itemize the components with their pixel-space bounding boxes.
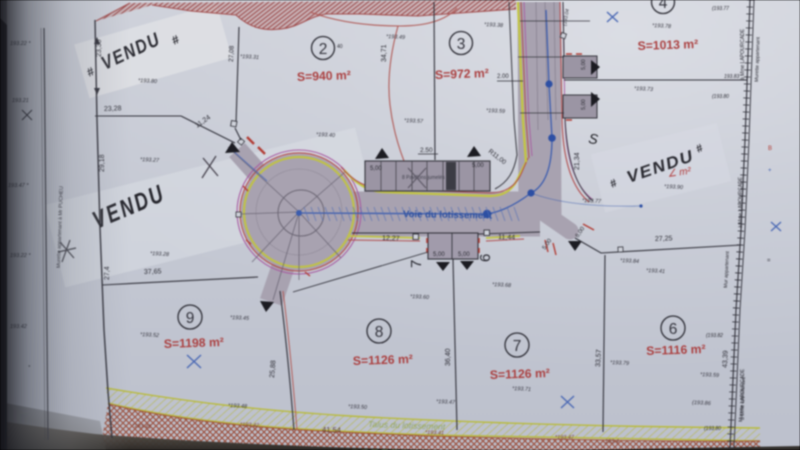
svg-text:*193.27: *193.27 [140,157,160,164]
svg-text:11,44: 11,44 [498,234,515,242]
svg-text:*193.73: *193.73 [634,86,654,93]
svg-text:à Mme LAPOURCADE: à Mme LAPOURCADE [738,176,744,228]
svg-text:7: 7 [513,338,522,355]
svg-text:193.4: 193.4 [605,439,619,445]
svg-text:2.50: 2.50 [420,147,433,154]
svg-text:*193.45: *193.45 [230,315,250,322]
svg-text:2.00: 2.00 [497,74,509,80]
svg-text:41,54: 41,54 [322,425,341,435]
svg-text:*193.84: *193.84 [620,258,639,265]
svg-text:S=1126 m²: S=1126 m² [353,352,413,368]
svg-text:7: 7 [408,260,425,268]
svg-text:*193.42: *193.42 [240,422,259,429]
svg-text:*193.47: *193.47 [555,435,575,441]
svg-text:*193.57: *193.57 [404,118,424,125]
svg-text:S=1116 m²: S=1116 m² [646,342,706,358]
svg-text:S=972 m²: S=972 m² [435,66,489,82]
svg-text:6: 6 [477,254,494,262]
svg-text:*193.52: *193.52 [140,332,159,339]
svg-text:*193.40: *193.40 [316,132,336,139]
svg-text:*193.59: *193.59 [700,372,719,379]
svg-text:5,00: 5,00 [370,166,382,172]
svg-text:193.83: 193.83 [724,74,740,80]
svg-text:*193.79: *193.79 [610,360,629,367]
svg-text:(193.86: (193.86 [692,400,712,407]
svg-text:B: B [768,146,772,152]
svg-text:=: = [767,258,771,264]
svg-text:(193.80: (193.80 [704,426,721,432]
svg-text:27,25: 27,25 [655,235,673,243]
svg-text:*193.68: *193.68 [492,282,512,289]
svg-text:27,08: 27,08 [228,45,236,62]
svg-text:(193.80: (193.80 [712,94,729,100]
svg-text:*193.41: *193.41 [646,268,665,275]
svg-text:S=1013 m²: S=1013 m² [637,37,698,53]
svg-text:*193.41: *193.41 [425,430,444,437]
svg-text:8: 8 [375,324,384,341]
svg-text:8 Pavillons jumelés: 8 Pavillons jumelés [402,175,445,181]
svg-text:36,40: 36,40 [445,348,452,366]
svg-text:43,39: 43,39 [722,350,730,368]
svg-text:5,00: 5,00 [433,252,445,258]
svg-text:*193.60: *193.60 [410,294,430,301]
svg-text:9: 9 [186,310,195,327]
svg-text:Voie du lotissement: Voie du lotissement [403,209,493,222]
svg-text:4: 4 [659,0,668,12]
svg-text:*193.38: *193.38 [484,22,504,29]
svg-text:5,00: 5,00 [581,99,587,110]
svg-text:5,00: 5,00 [458,252,470,258]
svg-text:3: 3 [457,36,466,53]
svg-text:6: 6 [669,321,678,338]
svg-text:2: 2 [319,41,328,58]
svg-text:*193.59: *193.59 [486,108,505,115]
svg-text:*193.47: *193.47 [436,399,456,406]
svg-text:40: 40 [337,44,343,50]
svg-text:*193.77: *193.77 [582,198,602,205]
svg-text:*193.28: *193.28 [150,251,170,258]
svg-text:S=1126 m²: S=1126 m² [490,366,550,382]
svg-text:*193.50: *193.50 [348,404,368,411]
svg-text:S=940 m²: S=940 m² [297,68,351,84]
svg-text:*193.80: *193.80 [138,78,158,85]
svg-text:*193.49: *193.49 [386,34,405,41]
svg-text:(193.77: (193.77 [712,6,729,12]
svg-text:*193.90: *193.90 [664,184,684,191]
svg-text:+: + [768,168,772,174]
svg-text:21,34: 21,34 [574,152,581,170]
svg-text:5,00: 5,00 [581,59,587,70]
svg-text:12,27: 12,27 [382,235,400,243]
svg-text:*193.48: *193.48 [228,403,248,410]
svg-text:*193.78: *193.78 [652,23,672,30]
svg-text:à Mme LAPOURCADE: à Mme LAPOURCADE [740,368,746,420]
svg-text:*193.71: *193.71 [512,386,531,393]
svg-text:34,71: 34,71 [381,44,388,62]
svg-text:(193.82: (193.82 [706,333,723,339]
svg-text:*193.31: *193.31 [240,54,259,61]
svg-text:à Mme LAPOURCADE: à Mme LAPOURCADE [740,28,746,80]
svg-text:5,00: 5,00 [472,163,484,169]
svg-text:37,65: 37,65 [144,268,162,276]
svg-text:S=1198 m²: S=1198 m² [164,335,224,351]
svg-text:33,57: 33,57 [595,349,603,367]
